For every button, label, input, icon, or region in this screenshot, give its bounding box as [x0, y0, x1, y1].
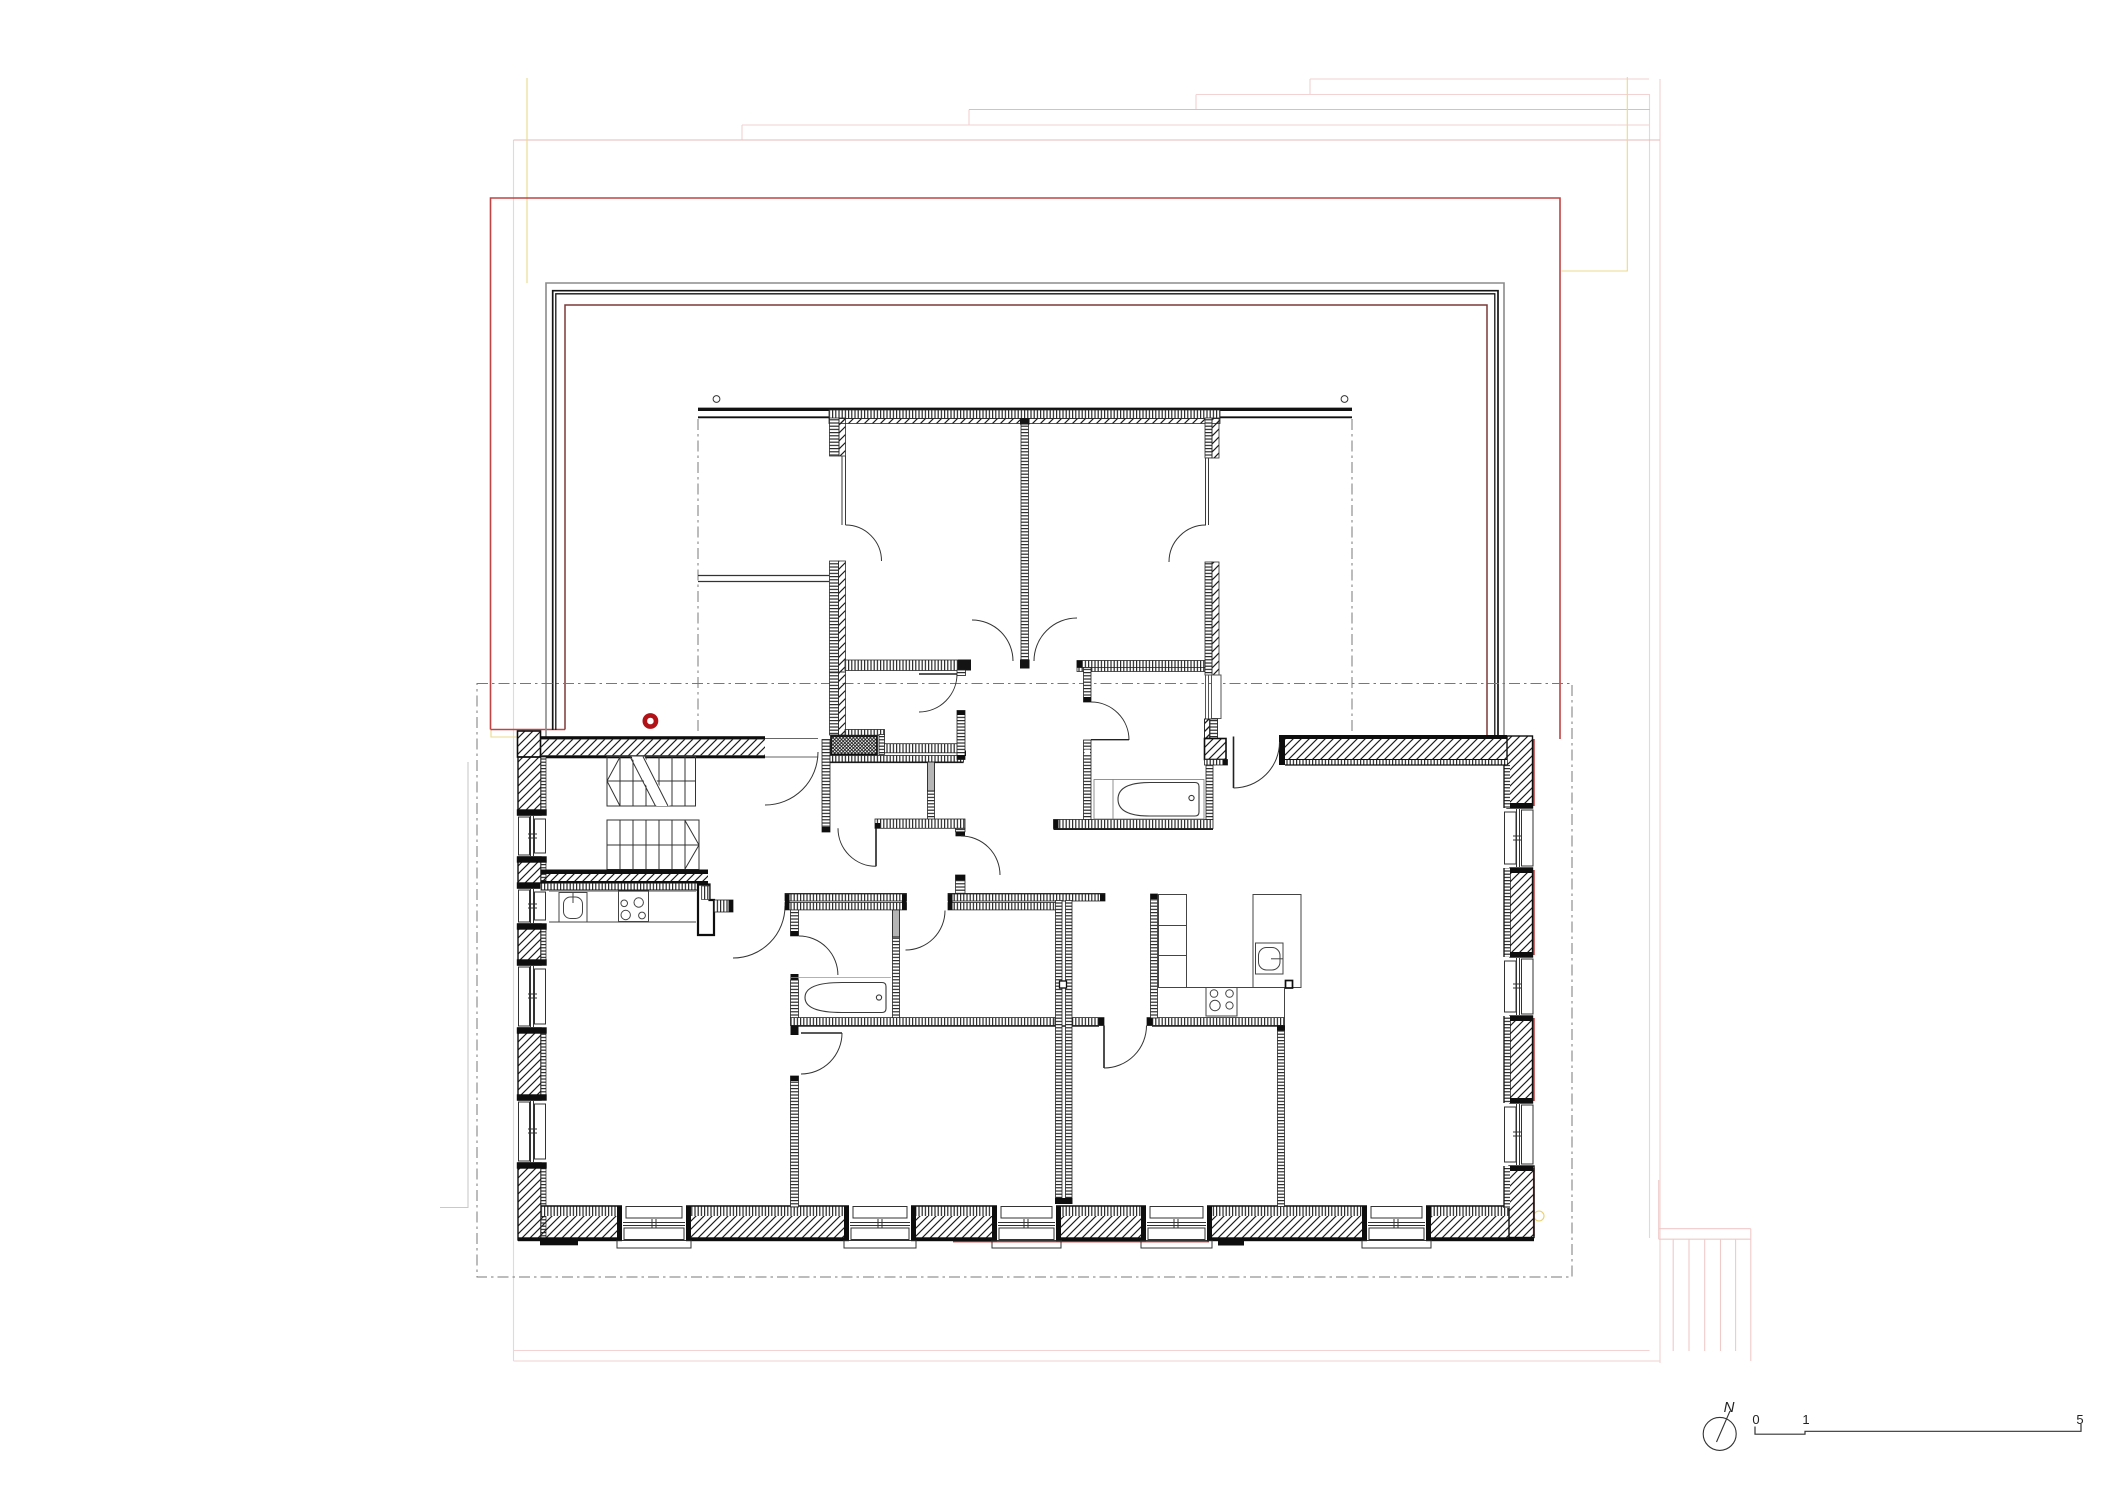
svg-text:0: 0	[1752, 1412, 1759, 1427]
svg-text:5: 5	[2076, 1412, 2083, 1427]
svg-text:1: 1	[1802, 1412, 1809, 1427]
svg-text:N: N	[1724, 1399, 1735, 1416]
